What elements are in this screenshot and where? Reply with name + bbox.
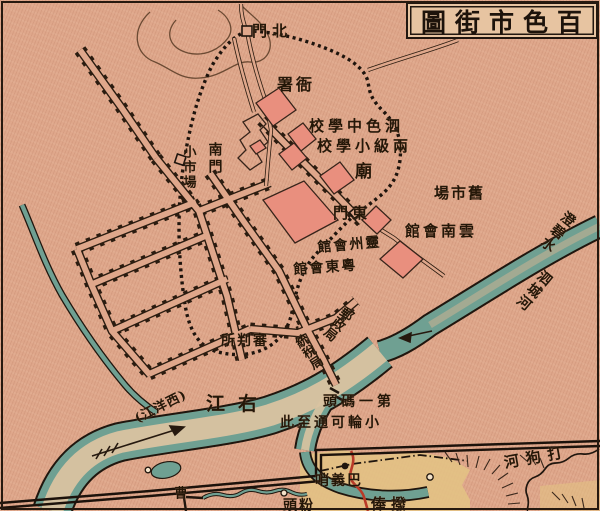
map-title-box: 圖街市色百 [406, 2, 598, 39]
label-east-gate: 門東 [333, 206, 371, 222]
boundary-station-dot [342, 463, 349, 470]
label-you-river: 江右 [206, 395, 270, 415]
label-partial-bottom-right: 俸撥 [371, 497, 411, 511]
yunnan-hall-building [380, 241, 423, 278]
baise-city-map: 圖街市色百 門北 署衙 校學中色泗 校學小級兩 廟 南門 小市場 門東 場市舊 … [0, 0, 600, 511]
label-cao: 曹 [172, 486, 186, 499]
label-temple: 廟 [355, 164, 372, 182]
label-partial-bottom-center: 頭粉 [283, 499, 315, 511]
north-gate-symbol [242, 26, 252, 36]
west-stream [22, 205, 157, 413]
label-yamen: 署衙 [277, 77, 315, 94]
label-small-market: 小市場 [181, 145, 195, 190]
label-first-wharf: 頭碼一第 [323, 395, 395, 410]
map-title: 圖街市色百 [421, 3, 591, 39]
label-bayi-post: 哨義巴 [315, 474, 363, 489]
label-old-market: 場市舊 [434, 186, 485, 202]
label-sise-middle-school: 校學中色泗 [309, 119, 404, 135]
label-north-gate: 門北 [252, 24, 292, 40]
label-south-gate: 南門 [207, 142, 222, 176]
label-court: 所判審 [221, 334, 269, 349]
label-yunnan-guild-hall: 館會南雲 [405, 224, 477, 240]
label-liangji-primary-school: 校學小級兩 [317, 139, 412, 155]
label-steamer-note: 此至通可輪小 [280, 416, 382, 431]
